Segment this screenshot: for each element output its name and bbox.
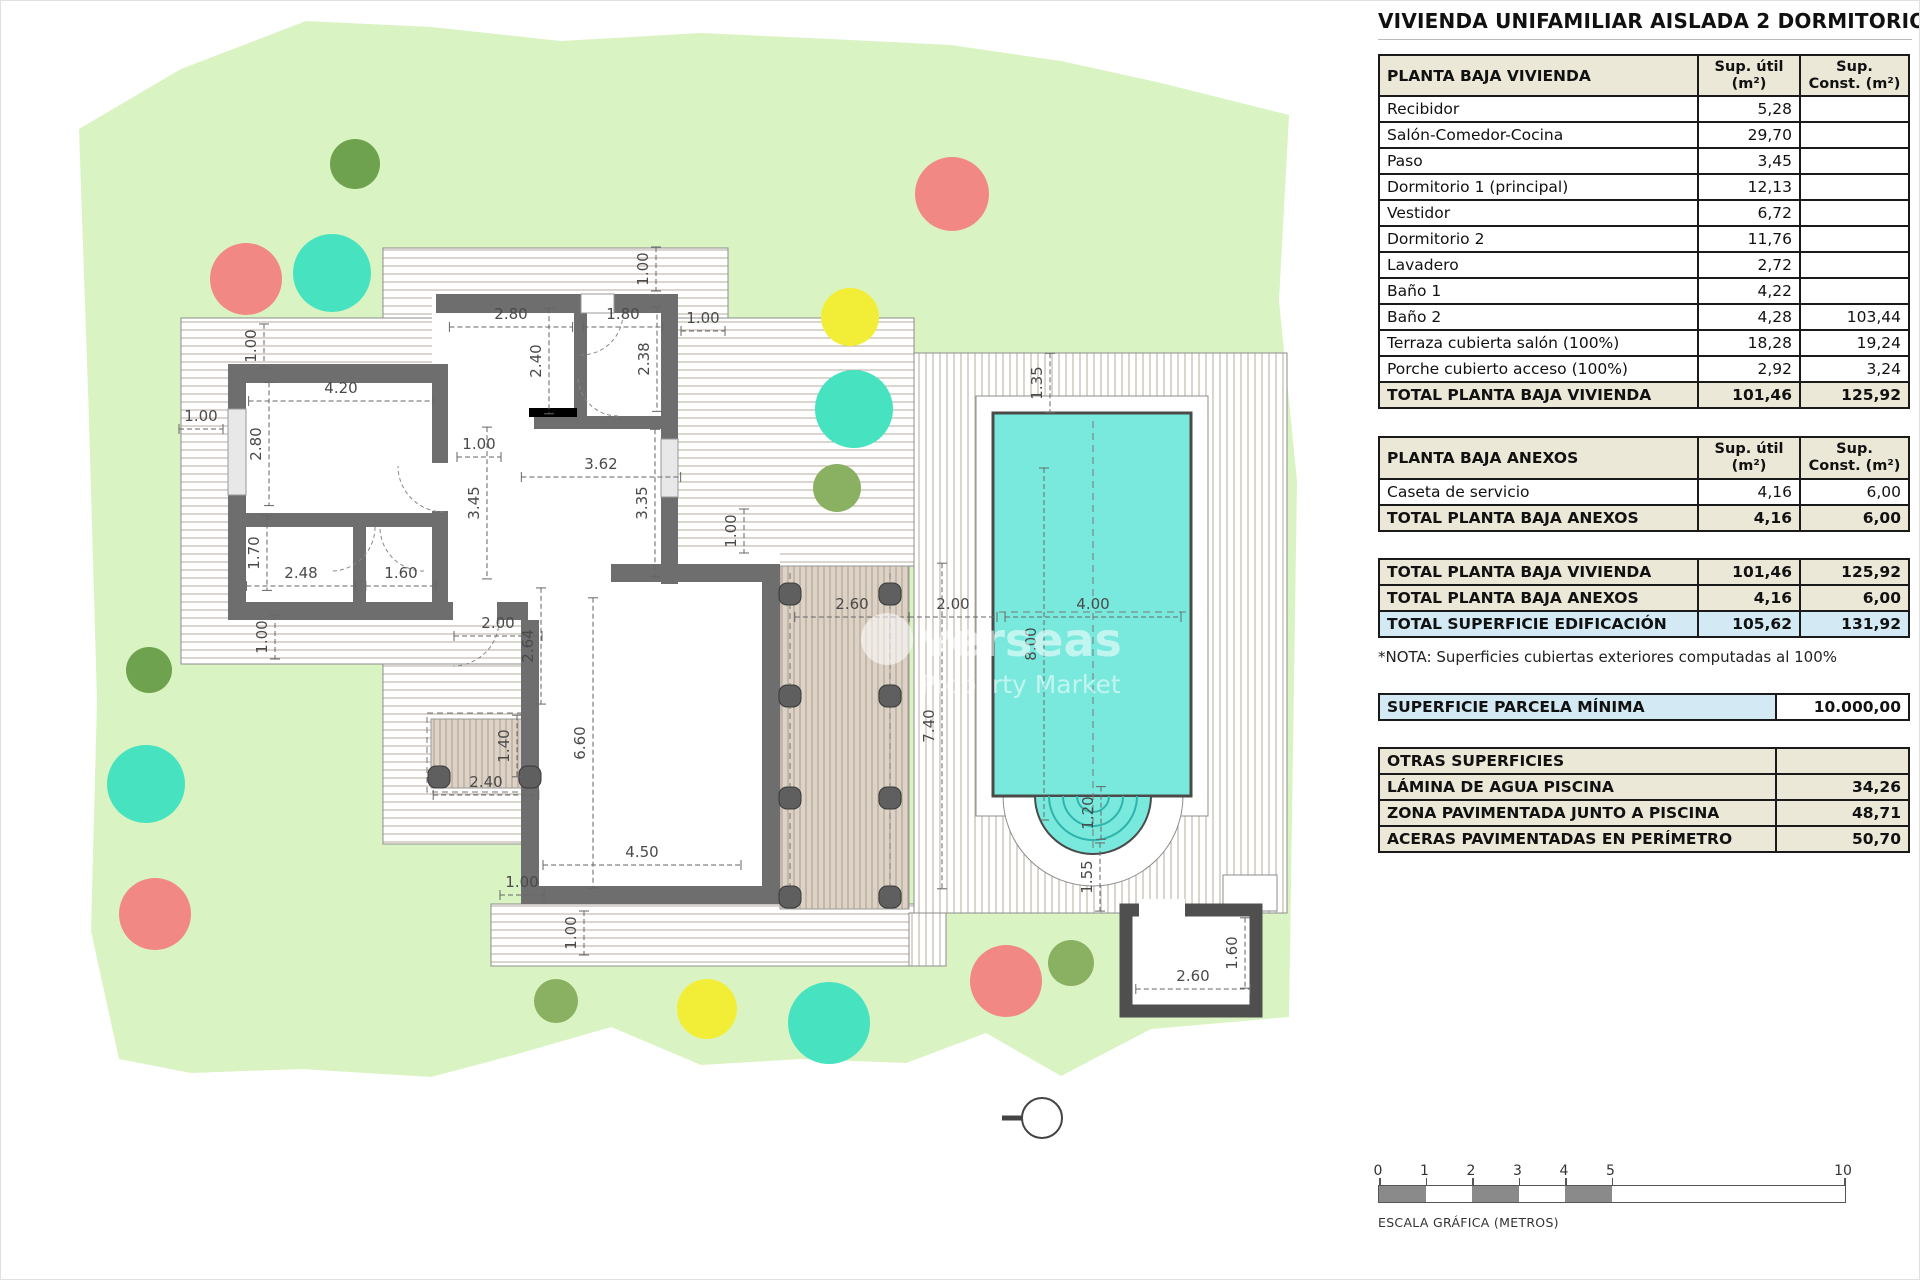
dimension-label: 6.60 — [571, 726, 589, 759]
tree — [813, 464, 861, 512]
dimension-label: 1.80 — [606, 305, 639, 323]
column — [879, 685, 901, 707]
window — [228, 409, 246, 495]
dimension-label: 1.00 — [686, 309, 719, 327]
dimension-label: 1.00 — [242, 329, 260, 362]
table-row: ZONA PAVIMENTADA JUNTO A PISCINA48,71 — [1379, 800, 1909, 826]
table-totales: TOTAL PLANTA BAJA VIVIENDA101,46125,92TO… — [1378, 558, 1910, 638]
surface-table-panel: VIVIENDA UNIFAMILIAR AISLADA 2 DORMITORI… — [1378, 9, 1912, 853]
tree — [970, 945, 1042, 1017]
dimension-label: 2.40 — [469, 773, 502, 791]
dimension-label: 2.00 — [481, 614, 514, 632]
table-row: Porche cubierto acceso (100%)2,923,24 — [1379, 356, 1909, 382]
dimension-label: 7.40 — [920, 709, 938, 742]
table-row: Baño 14,22 — [1379, 278, 1909, 304]
col-sup-util: Sup. útil (m²) — [1698, 55, 1800, 96]
dimension-label: 1.00 — [462, 435, 495, 453]
column — [519, 766, 541, 788]
dimension-label: 4.20 — [324, 379, 357, 397]
column — [779, 886, 801, 908]
column — [879, 583, 901, 605]
note-text: *NOTA: Superficies cubiertas exteriores … — [1378, 648, 1912, 666]
scale-tick-label: 2 — [1467, 1163, 1476, 1179]
scale-tick-labels: 01234510 — [1378, 1163, 1878, 1181]
dimension-label: 1.00 — [722, 514, 740, 547]
benchmark-symbol — [1002, 1098, 1062, 1138]
dimension-label: 1.00 — [253, 620, 271, 653]
dimension-label: 3.35 — [633, 486, 651, 519]
dimension-label: 1.35 — [1028, 366, 1046, 399]
scale-caption: ESCALA GRÁFICA (METROS) — [1378, 1215, 1878, 1230]
dimension-label: 1.00 — [562, 916, 580, 949]
tree — [821, 288, 879, 346]
tree — [330, 139, 380, 189]
dimension-label: 1.60 — [1223, 936, 1241, 969]
dimension-label: 2.00 — [936, 595, 969, 613]
tree — [788, 982, 870, 1064]
floor-plan-drawing: 2.801.801.004.201.001.003.622.481.602.00… — [1, 1, 1361, 1280]
parcela-value: 10.000,00 — [1776, 694, 1909, 720]
scale-tick-label: 1 — [1420, 1163, 1429, 1179]
column — [879, 886, 901, 908]
parcela-label: SUPERFICIE PARCELA MÍNIMA — [1379, 694, 1776, 720]
dimension-label: 1.60 — [384, 564, 417, 582]
tree — [210, 243, 282, 315]
dimension-label: 1.40 — [495, 729, 513, 762]
table-header-anexos: PLANTA BAJA ANEXOS — [1379, 437, 1698, 478]
table-row: Recibidor5,28 — [1379, 96, 1909, 122]
table-row: Lavadero2,72 — [1379, 252, 1909, 278]
table-row: TOTAL PLANTA BAJA ANEXOS4,166,00 — [1379, 505, 1909, 531]
table-row: ACERAS PAVIMENTADAS EN PERÍMETRO50,70 — [1379, 826, 1909, 852]
table-row: TOTAL SUPERFICIE EDIFICACIÓN105,62131,92 — [1379, 611, 1909, 637]
dimension-label: 2.64 — [519, 629, 537, 662]
table-row: Vestidor6,72 — [1379, 200, 1909, 226]
column — [779, 787, 801, 809]
dimension-label: 2.80 — [247, 427, 265, 460]
sun-logo-icon — [861, 613, 913, 665]
table-planta-baja-anexos: PLANTA BAJA ANEXOS Sup. útil (m²) Sup. C… — [1378, 436, 1910, 531]
dimension-label: 1.70 — [245, 536, 263, 569]
kitchen-counter — [529, 408, 577, 417]
tree — [677, 979, 737, 1039]
table-otras-superficies: OTRAS SUPERFICIES LÁMINA DE AGUA PISCINA… — [1378, 747, 1910, 853]
dimension-label: 4.00 — [1076, 595, 1109, 613]
scale-tick-label: 3 — [1513, 1163, 1522, 1179]
plan-title: VIVIENDA UNIFAMILIAR AISLADA 2 DORMITORI… — [1378, 9, 1912, 40]
table-row: LÁMINA DE AGUA PISCINA34,26 — [1379, 774, 1909, 800]
col-sup-const: Sup. Const. (m²) — [1800, 55, 1909, 96]
dimension-label: 2.60 — [835, 595, 868, 613]
table-row: TOTAL PLANTA BAJA VIVIENDA101,46125,92 — [1379, 559, 1909, 585]
column — [879, 787, 901, 809]
column — [779, 583, 801, 605]
table-row: Salón-Comedor-Cocina29,70 — [1379, 122, 1909, 148]
table-row: Paso3,45 — [1379, 148, 1909, 174]
table-row: Dormitorio 211,76 — [1379, 226, 1909, 252]
paved-stub — [909, 913, 946, 966]
window — [661, 439, 678, 497]
dimension-label: 4.50 — [625, 843, 658, 861]
tree — [534, 979, 578, 1023]
dimension-label: 1.55 — [1078, 860, 1096, 893]
otras-header: OTRAS SUPERFICIES — [1379, 748, 1776, 774]
dimension-label: 2.38 — [635, 342, 653, 375]
tree — [915, 157, 989, 231]
graphic-scale: 01234510 ESCALA GRÁFICA (METROS) — [1378, 1163, 1878, 1253]
dimension-label: 2.40 — [527, 344, 545, 377]
tree — [1048, 940, 1094, 986]
dimension-label: 3.45 — [465, 486, 483, 519]
dimension-label: 2.48 — [284, 564, 317, 582]
table-row: Dormitorio 1 (principal)12,13 — [1379, 174, 1909, 200]
table-row: Terraza cubierta salón (100%)18,2819,24 — [1379, 330, 1909, 356]
scale-tick-label: 0 — [1374, 1163, 1383, 1179]
tree — [119, 878, 191, 950]
table-row: Baño 24,28103,44 — [1379, 304, 1909, 330]
column — [428, 766, 450, 788]
dimension-label: 1.00 — [184, 407, 217, 425]
dimension-label: 3.62 — [584, 455, 617, 473]
table-row: TOTAL PLANTA BAJA ANEXOS4,166,00 — [1379, 585, 1909, 611]
dimension-label: 2.60 — [1176, 967, 1209, 985]
tree — [107, 745, 185, 823]
dimension-label: 1.00 — [505, 873, 538, 891]
column — [779, 685, 801, 707]
table-row: Caseta de servicio4,166,00 — [1379, 479, 1909, 505]
scale-tick-label: 10 — [1834, 1163, 1852, 1179]
dimension-label: 1.20 — [1079, 796, 1097, 829]
scale-bar — [1378, 1185, 1846, 1203]
scale-tick-label: 4 — [1560, 1163, 1569, 1179]
dimension-label: 2.80 — [494, 305, 527, 323]
watermark-subtitle: Property Market — [921, 670, 1121, 699]
dimension-label: 1.00 — [634, 252, 652, 285]
table-parcela-minima: SUPERFICIE PARCELA MÍNIMA 10.000,00 — [1378, 693, 1910, 721]
tree — [293, 234, 371, 312]
tree — [815, 370, 893, 448]
table-header-vivienda: PLANTA BAJA VIVIENDA — [1379, 55, 1698, 96]
site-plan-page: 2.801.801.004.201.001.003.622.481.602.00… — [0, 0, 1920, 1280]
watermark-brand: verseas — [921, 613, 1122, 667]
table-planta-baja-vivienda: PLANTA BAJA VIVIENDA Sup. útil (m²) Sup.… — [1378, 54, 1910, 409]
table-row: TOTAL PLANTA BAJA VIVIENDA101,46125,92 — [1379, 382, 1909, 408]
tree — [126, 647, 172, 693]
scale-tick-label: 5 — [1606, 1163, 1615, 1179]
